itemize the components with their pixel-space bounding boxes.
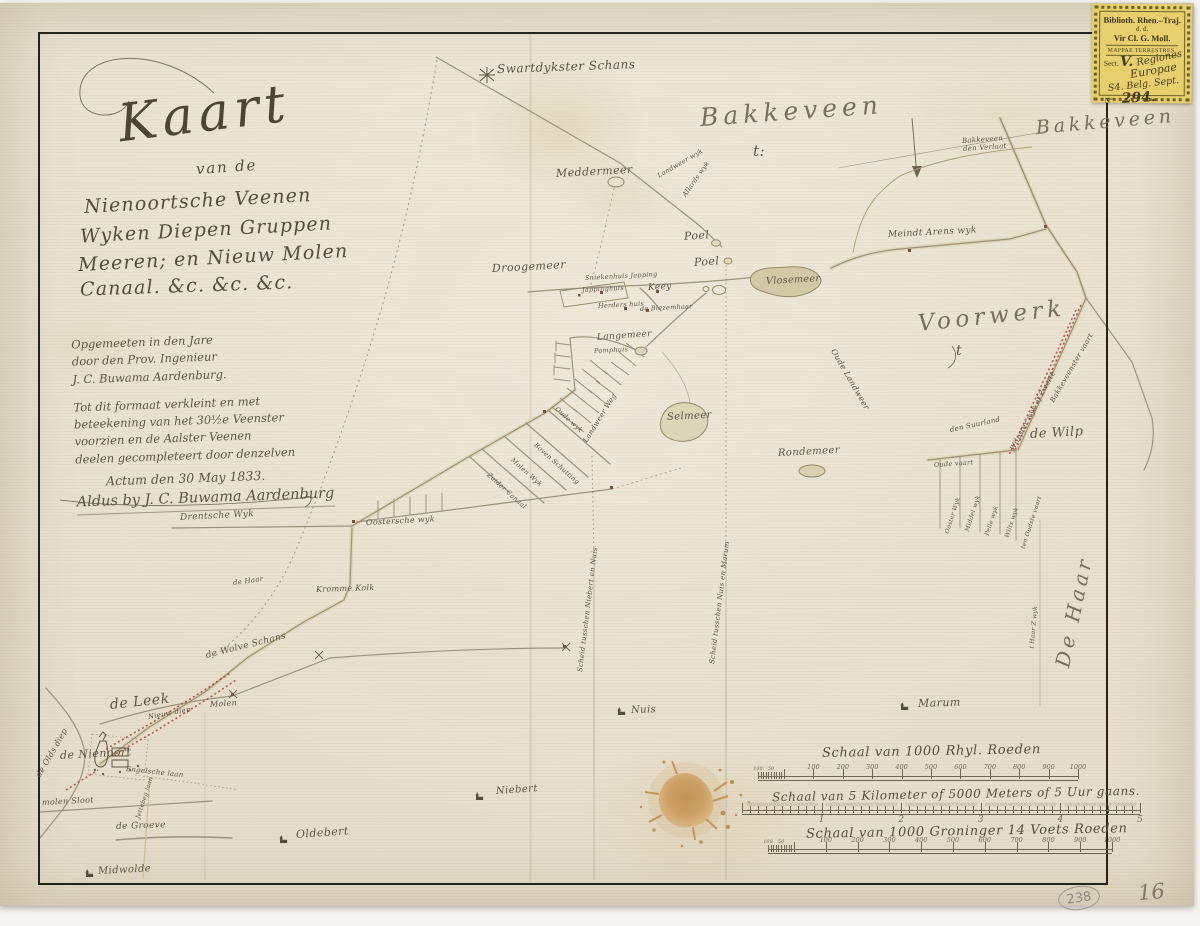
scale-kilometers-tick [917,806,918,813]
scale-kilometers-tick [989,806,990,813]
scale-kilometers-num: 300 [841,802,849,807]
scale-kilometers-tick [1060,803,1061,813]
scale-rijnlandse-roeden-num: 400 [895,763,907,771]
scale-groninger-roeden-num: 300 [883,836,895,844]
scale-rijnlandse-roeden-tick [774,772,775,779]
scale-groninger-roeden-tick [778,845,779,852]
scale-kilometers-tick [790,806,791,813]
scale-kilometers-tick [1044,806,1045,813]
scanned-map-page: Kaart van de Nienoortsche Veenen Wyken D… [0,0,1200,926]
scale-groninger-roeden-tick [781,845,782,852]
scale-kilometers-num: 600 [945,802,953,807]
scale-rijnlandse-roeden-tick [768,772,769,779]
scale-kilometers-num: 500 [778,802,786,807]
library-stamp: Biblioth. Rhen.–Traj. d. d. Vir Cl. G. M… [1092,4,1193,104]
scale-kilometers-tick [1076,806,1077,813]
scale-groninger-roeden-num: 900 [1074,836,1086,844]
scale-kilometers-tick [885,806,886,813]
scale-kilometers-tick [853,806,854,813]
scale-kilometers-num: 800 [961,802,969,807]
scale-kilometers-tick [830,806,831,813]
scale-kilometers-tick [1005,806,1006,813]
scale-kilometers-tick [965,806,966,813]
scale-kilometers-tick [1029,806,1030,813]
scale-rijnlandse-roeden-tick [758,772,759,779]
scale-kilometers-num: 500 [1096,802,1104,807]
scale-kilometers-tick [893,806,894,813]
scale-kilometers-num: 900 [1128,802,1136,807]
scale-kilometers-tick [925,806,926,813]
scale-kilometers-num: 700 [953,802,961,807]
scale-kilometers-num: 100 [985,802,993,807]
scale-kilometers-tick [861,806,862,813]
scale-kilometers-num: 300 [1080,802,1088,807]
scale-groninger-roeden-num: 100 [820,836,832,844]
scale-rijnlandse-roeden-num: 100 [807,763,819,771]
scale-rijnlandse-roeden-tick [763,772,764,779]
scale-groninger-roeden-num: 500 [947,836,959,844]
scale-kilometers-num: 500 [937,802,945,807]
scale-kilometers-tick [933,806,934,813]
scale-rijnlandse-roeden-num: 900 [1042,763,1054,771]
scale-kilometers-tick [981,803,982,813]
scale-kilometers-tick [758,806,759,813]
stamp-inner: Biblioth. Rhen.–Traj. d. d. Vir Cl. G. M… [1099,11,1186,97]
scale-kilometers-tick [973,806,974,813]
scale-groninger-roeden-tick [786,845,787,852]
scale-rijnlandse-roeden-tick [779,772,780,779]
scale-kilometers-num: 700 [1112,802,1120,807]
scale-kilometers-tick [1068,806,1069,813]
stamp-donor: Vir Cl. G. Moll. [1100,33,1184,44]
scale-kilometers-tick [1132,806,1133,813]
scale-kilometers-tick [1037,806,1038,813]
scale-groninger-roeden-num: 800 [1042,836,1054,844]
scale-rijnlandse-roeden-num: 300 [866,763,878,771]
scale-rijnlandse-roeden-num: 50 [768,766,774,772]
scale-groninger-roeden-tick [794,842,795,852]
scale-groninger-roeden-num: 200 [851,836,863,844]
scale-kilometers-num: 2 [898,815,904,825]
scale-bar-layer: Schaal van 1000 Rhyl. Roeden100501002003… [0,0,1200,926]
scale-kilometers-num: 200 [754,802,762,807]
scale-rijnlandse-roeden-num: 700 [984,763,996,771]
scale-kilometers-tick [798,806,799,813]
scale-rijnlandse-roeden-num: 800 [1013,763,1025,771]
scale-rijnlandse-roeden-num: 500 [925,763,937,771]
scale-kilometers-num: 600 [1025,802,1033,807]
scale-rijnlandse-roeden-num: 100 [753,766,763,772]
scale-rijnlandse-roeden-tick [784,769,785,779]
scale-rijnlandse-roeden-tick [781,772,782,779]
scale-kilometers-num: 800 [1040,802,1048,807]
scale-kilometers-num: 200 [913,802,921,807]
scale-kilometers-tick [1116,806,1117,813]
scale-kilometers-tick [766,806,767,813]
scale-groninger-roeden-num: 400 [915,836,927,844]
scale-kilometers-tick [774,806,775,813]
scale-kilometers-num: 400 [849,802,857,807]
scale-groninger-roeden-num: 700 [1010,836,1022,844]
scale-kilometers-tick [814,806,815,813]
scale-kilometers-tick [869,806,870,813]
scale-kilometers-tick [1092,806,1093,813]
scale-kilometers-num: 400 [1009,802,1017,807]
scale-rijnlandse-roeden-num: 1000 [1070,763,1087,771]
scale-kilometers-num: 100 [1064,802,1072,807]
scale-rijnlandse-roeden-num: 600 [954,763,966,771]
scale-groninger-roeden-bar [768,849,1112,854]
stamp-sect-label: Sect. [1104,59,1119,68]
scale-kilometers-num: 800 [1120,802,1128,807]
scale-kilometers-tick [909,806,910,813]
scale-kilometers-num: 300 [921,802,929,807]
scale-rijnlandse-roeden-tick [766,772,767,779]
scale-kilometers-num: 600 [865,802,873,807]
scale-kilometers-tick [1140,803,1141,813]
scale-rijnlandse-roeden-title: Schaal van 1000 Rhyl. Roeden [822,742,1041,761]
stamp-library-name: Biblioth. Rhen.–Traj. [1100,15,1184,26]
scale-groninger-roeden-num: 1000 [1104,836,1121,844]
scale-kilometers-num: 300 [1001,802,1009,807]
scale-kilometers-num: 700 [873,802,881,807]
scale-kilometers-tick [838,806,839,813]
scale-kilometers-tick [1052,806,1053,813]
scale-rijnlandse-roeden-bar [758,776,1078,781]
scale-kilometers-tick [949,806,950,813]
scale-kilometers-num: 100 [826,802,834,807]
scale-kilometers-num: 500 [857,802,865,807]
scale-kilometers-num: 800 [881,802,889,807]
scale-groninger-roeden-tick [768,845,769,852]
scale-kilometers-num: 900 [810,802,818,807]
scale-kilometers-tick [782,806,783,813]
scale-kilometers-num: 200 [993,802,1001,807]
scale-kilometers-num: 100 [905,802,913,807]
scale-rijnlandse-roeden-tick [761,772,762,779]
scale-groninger-roeden-num: 600 [979,836,991,844]
scale-kilometers-tick [901,803,902,813]
scale-kilometers-num: 900 [1048,802,1056,807]
scale-kilometers-num: 600 [786,802,794,807]
scale-kilometers-tick [1013,806,1014,813]
scale-groninger-roeden-num: 100 [763,839,773,845]
scale-kilometers-num: 800 [802,802,810,807]
scale-rijnlandse-roeden-tick [776,772,777,779]
stamp-ornament-border: Biblioth. Rhen.–Traj. d. d. Vir Cl. G. M… [1094,6,1191,102]
scale-kilometers-tick [1108,806,1109,813]
scale-kilometers-tick [997,806,998,813]
scale-kilometers-num: 600 [1104,802,1112,807]
scale-kilometers-tick [1021,806,1022,813]
scale-kilometers-tick [1100,806,1101,813]
scale-kilometers-tick [957,806,958,813]
scale-kilometers-num: 300 [762,802,770,807]
scale-kilometers-num: 400 [929,802,937,807]
scale-kilometers-tick [742,803,743,813]
scale-kilometers-num: 5 [1137,815,1143,825]
scale-rijnlandse-roeden-tick [771,772,772,779]
scale-kilometers-tick [1124,806,1125,813]
stamp-handwritten-number: 294. [1121,89,1156,107]
scale-rijnlandse-roeden-num: 200 [837,763,849,771]
scale-kilometers-num: 500 [1017,802,1025,807]
scale-kilometers-tick [1084,806,1085,813]
scale-kilometers-num: 200 [834,802,842,807]
scale-groninger-roeden-tick [784,845,785,852]
scale-groninger-roeden-tick [776,845,777,852]
stamp-number-label: Nº [1105,96,1113,105]
scale-kilometers-tick [822,803,823,813]
scale-kilometers-tick [877,806,878,813]
scale-kilometers-tick [750,806,751,813]
scale-kilometers-num: 700 [794,802,802,807]
pencil-page-number: 16 [1137,879,1166,905]
scale-kilometers-num: 900 [969,802,977,807]
scale-kilometers-num: 900 [889,802,897,807]
scale-kilometers-num: 1 [819,815,825,825]
scale-kilometers-num: 200 [1072,802,1080,807]
scale-kilometers-tick [941,806,942,813]
scale-groninger-roeden-tick [771,845,772,852]
scale-groninger-roeden-num: 50 [778,839,784,845]
scale-kilometers-num: 100 [746,802,754,807]
scale-kilometers-num: 700 [1033,802,1041,807]
scale-groninger-roeden-tick [791,845,792,852]
scale-groninger-roeden-tick [789,845,790,852]
scale-groninger-roeden-tick [773,845,774,852]
scale-kilometers-tick [806,806,807,813]
scale-kilometers-num: 400 [1088,802,1096,807]
scale-kilometers-tick [845,806,846,813]
scale-kilometers-num: 400 [770,802,778,807]
